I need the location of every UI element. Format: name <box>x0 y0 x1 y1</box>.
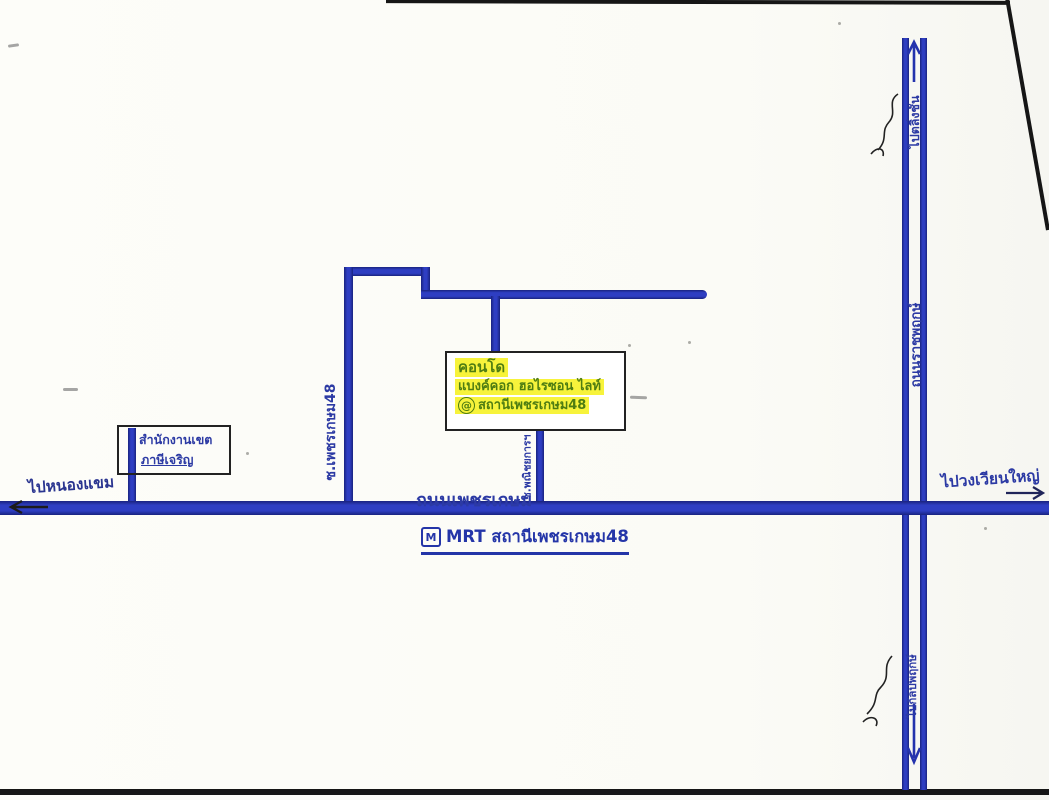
scan-artifact-dash <box>63 388 78 391</box>
condo-access-stub <box>491 296 500 354</box>
soi-48-road <box>344 267 353 512</box>
scan-speck <box>984 527 987 530</box>
district-office-line1: สำนักงานเขต <box>139 430 229 450</box>
soi-commercial-road <box>536 429 544 512</box>
direction-north-label: ไปตลิ่งชัน <box>905 95 925 148</box>
condo-name-line1: คอนโด <box>455 358 508 377</box>
direction-west-label: ไปหนองแขม <box>27 469 115 500</box>
condo-station-text: สถานีเพชรเกษม48 <box>478 398 586 413</box>
scan-artifact-dash <box>8 43 19 48</box>
scan-top-border <box>386 0 1010 5</box>
scan-speck <box>628 344 631 347</box>
at-symbol-icon: @ <box>458 397 475 414</box>
scan-speck <box>838 22 841 25</box>
soi-48-label: ซ.เพชรเกษม48 <box>320 383 342 480</box>
scan-speck <box>688 341 691 344</box>
scan-bottom-border <box>0 789 1049 795</box>
scan-artifact-dash <box>630 396 647 400</box>
upper-access-road-left-segment <box>344 267 430 276</box>
upper-access-road-right-segment <box>421 290 707 299</box>
scan-corner-diagonal <box>1005 0 1049 230</box>
mrt-logo-icon: M <box>421 527 441 547</box>
condo-name-line2: แบงค์คอก ฮอไรซอน ไลท์ <box>455 379 604 395</box>
pen-squiggle-top <box>866 88 906 160</box>
district-office-line2: ภาษีเจริญ <box>141 450 229 470</box>
direction-south-label: ไปกัลปพฤกษ์ <box>904 654 922 717</box>
east-arrow-icon <box>1004 485 1048 501</box>
condo-callout-box: คอนโด แบงค์คอก ฮอไรซอน ไลท์ @สถานีเพชรเก… <box>445 351 626 431</box>
mrt-station-text: MRT สถานีเพชรเกษม48 <box>446 524 629 550</box>
district-office-box: สำนักงานเขต ภาษีเจริญ <box>117 425 231 475</box>
condo-station-line: @สถานีเพชรเกษม48 <box>455 397 589 414</box>
west-arrow-icon <box>6 498 50 516</box>
north-arrow-icon <box>905 38 923 84</box>
mrt-station-label: M MRT สถานีเพชรเกษม48 <box>421 524 629 555</box>
pen-squiggle-bottom <box>856 648 900 732</box>
ratchaphruek-road-label: ถนนราชพฤกษ์ <box>904 303 926 388</box>
phetkasem-road-label: ถนนเพชรเกษม <box>416 485 532 514</box>
scanned-map-page: ไปตลิ่งชัน ถนนราชพฤกษ์ ไปกัลปพฤกษ์ ซ.เพช… <box>0 0 1049 800</box>
scan-speck <box>246 452 249 455</box>
